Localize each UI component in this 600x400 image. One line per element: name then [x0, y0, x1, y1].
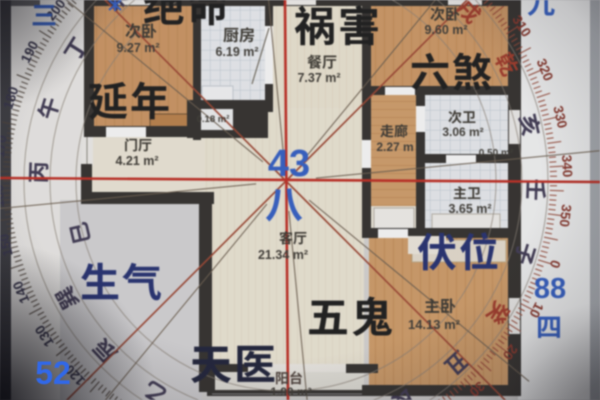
svg-text:160: 160 [0, 184, 7, 207]
svg-text:9.60 m²: 9.60 m² [424, 23, 467, 37]
svg-text:7.37 m²: 7.37 m² [297, 71, 340, 85]
svg-text:4.21 m²: 4.21 m² [115, 154, 158, 168]
svg-text:3.65 m²: 3.65 m² [448, 202, 491, 216]
svg-text:340: 340 [559, 154, 575, 177]
svg-text:88: 88 [534, 273, 566, 305]
svg-text:21.34 m²: 21.34 m² [258, 248, 308, 262]
svg-text:43: 43 [268, 143, 310, 185]
svg-text:0.50 m²: 0.50 m² [479, 148, 514, 159]
svg-text:1.90 m²: 1.90 m² [270, 385, 311, 399]
svg-text:350: 350 [557, 204, 575, 228]
svg-text:2.27 m: 2.27 m [376, 140, 413, 154]
svg-text:6.19 m²: 6.19 m² [215, 45, 258, 59]
svg-text:0.18 m²: 0.18 m² [197, 114, 230, 125]
svg-text:9.27 m²: 9.27 m² [116, 41, 159, 55]
svg-text:52: 52 [35, 355, 71, 391]
svg-text:3.06 m²: 3.06 m² [442, 125, 483, 139]
svg-text:14.13 m²: 14.13 m² [408, 317, 461, 332]
